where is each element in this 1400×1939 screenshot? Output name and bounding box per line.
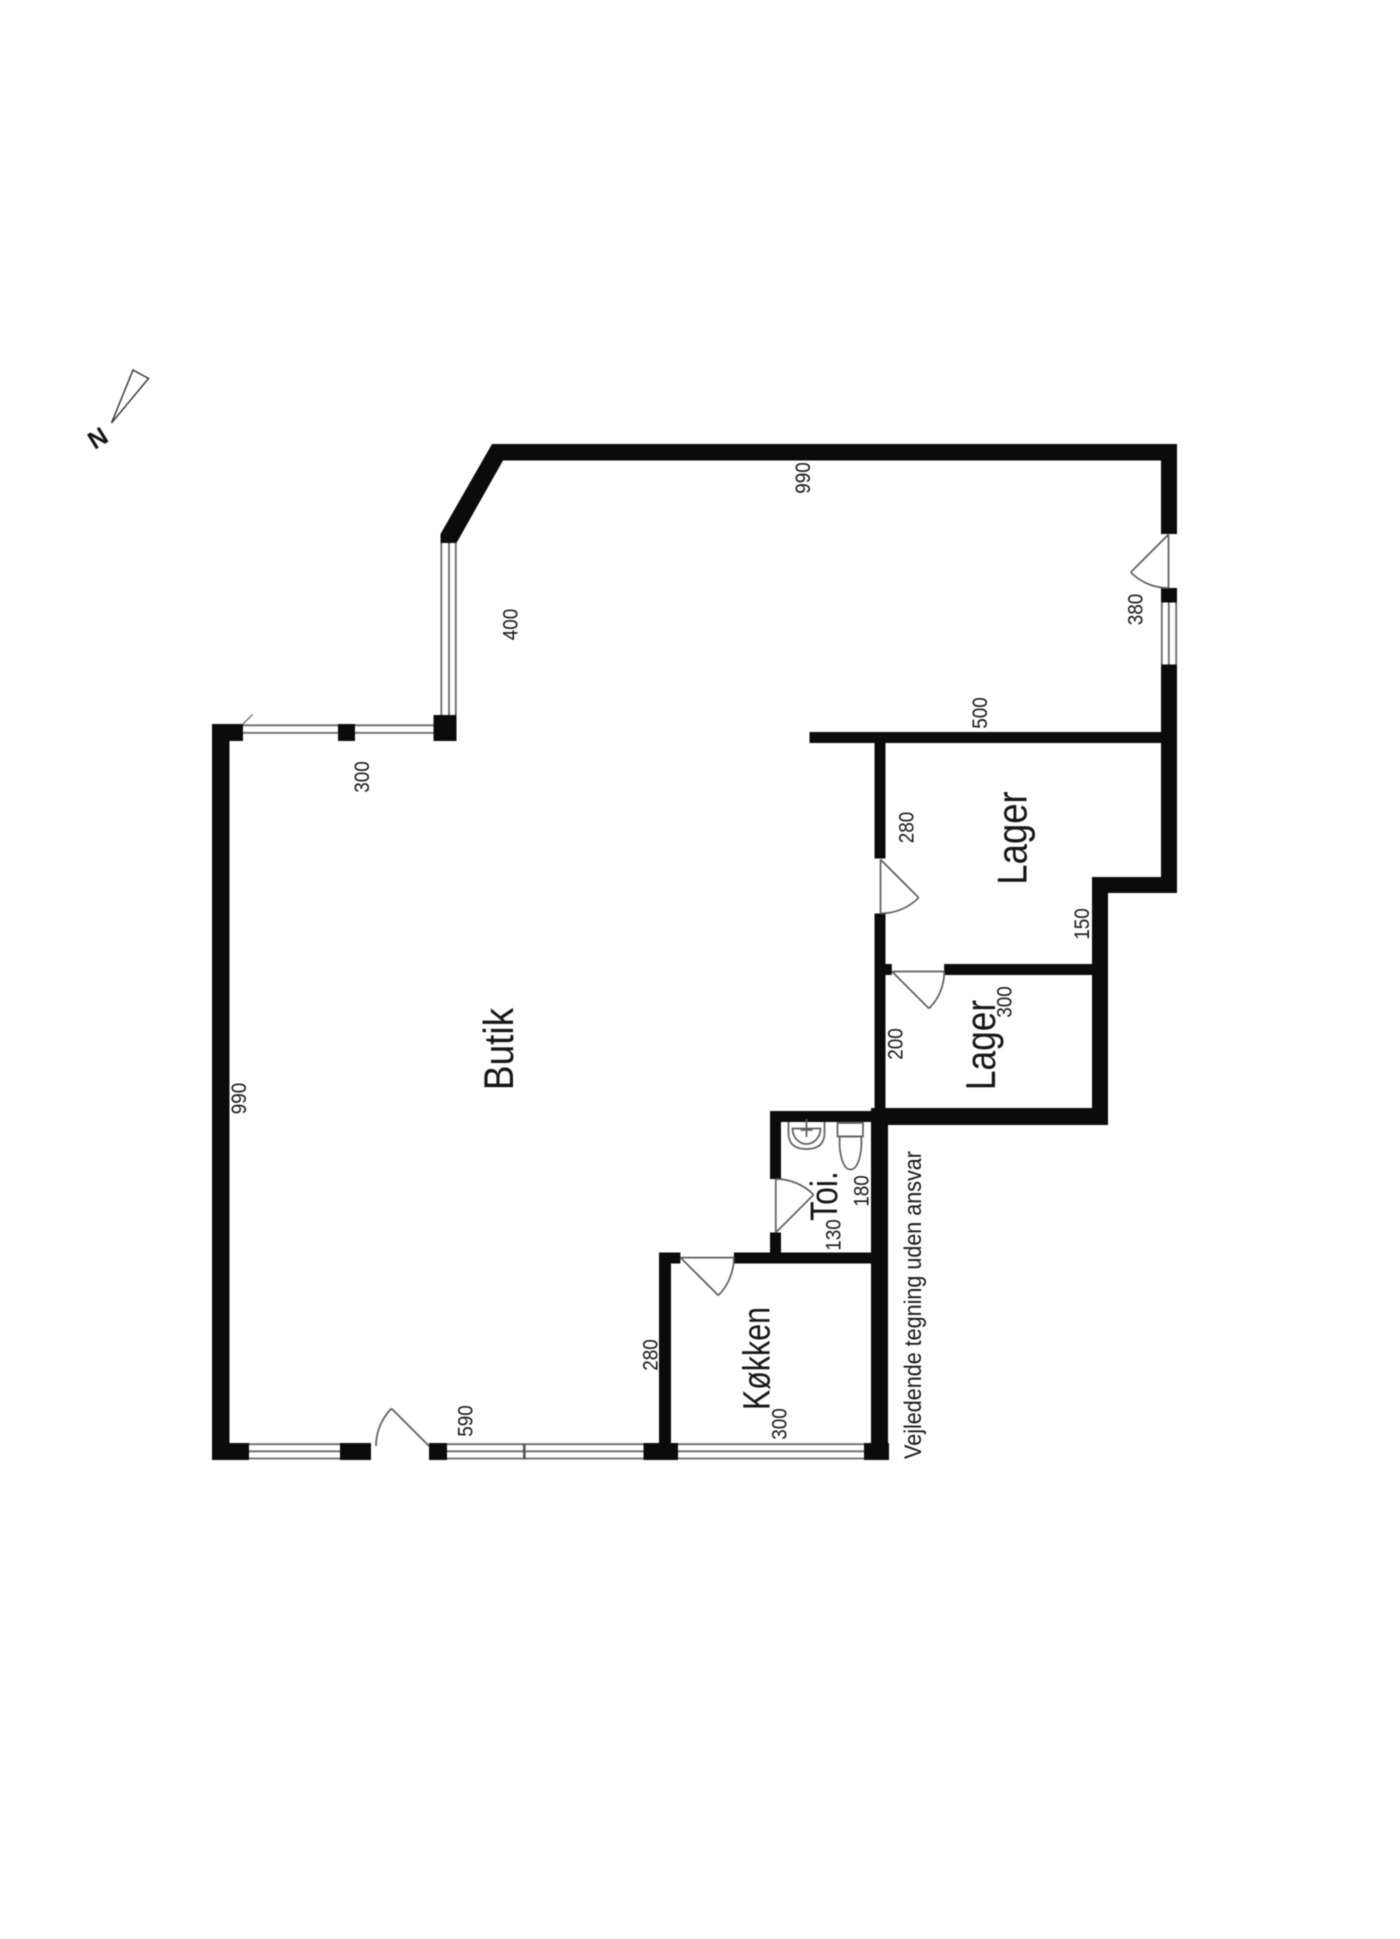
svg-text:500: 500	[969, 697, 992, 729]
svg-text:Vejledende tegning uden ansvar: Vejledende tegning uden ansvar	[899, 1151, 927, 1459]
svg-text:200: 200	[884, 1028, 907, 1060]
svg-text:300: 300	[768, 1408, 791, 1440]
svg-text:380: 380	[1124, 594, 1147, 626]
svg-text:Toi.: Toi.	[803, 1171, 845, 1221]
svg-text:Butik: Butik	[476, 1008, 523, 1090]
svg-text:300: 300	[351, 761, 374, 793]
svg-text:Lager: Lager	[989, 791, 1036, 884]
svg-text:990: 990	[792, 462, 815, 494]
svg-text:Køkken: Køkken	[737, 1307, 779, 1410]
svg-text:180: 180	[850, 1175, 873, 1207]
svg-text:590: 590	[454, 1405, 477, 1437]
svg-text:150: 150	[1071, 908, 1094, 940]
svg-text:400: 400	[499, 609, 522, 641]
svg-text:280: 280	[895, 812, 918, 844]
svg-text:280: 280	[639, 1339, 662, 1371]
svg-text:990: 990	[228, 1083, 251, 1115]
svg-text:Lager: Lager	[958, 1000, 1005, 1090]
svg-text:130: 130	[822, 1219, 845, 1251]
